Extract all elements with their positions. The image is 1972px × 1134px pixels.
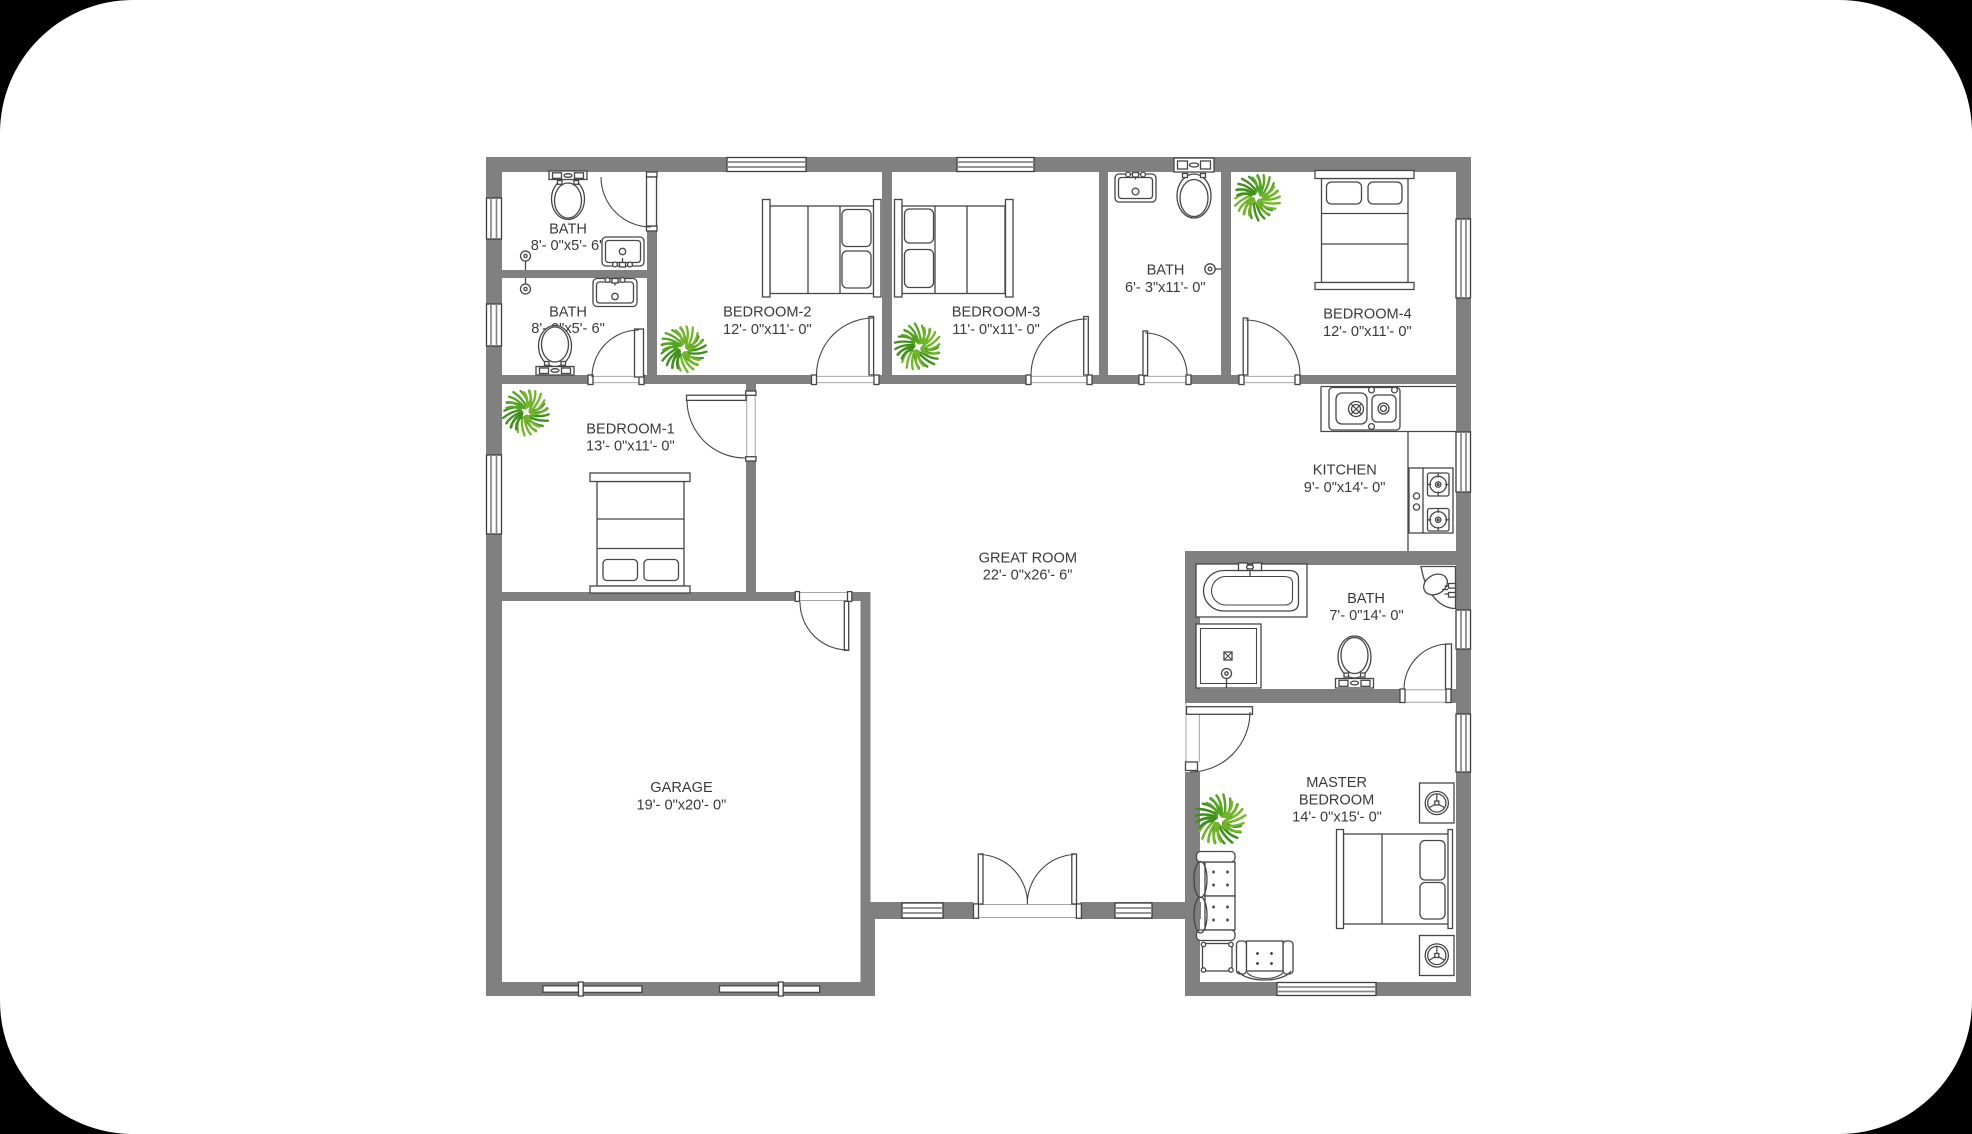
svg-text:KITCHEN: KITCHEN [1313,463,1377,479]
svg-text:19'- 0"x20'- 0": 19'- 0"x20'- 0" [637,797,727,813]
svg-text:BEDROOM-3: BEDROOM-3 [952,305,1040,321]
svg-text:14'- 0"x15'- 0": 14'- 0"x15'- 0" [1292,810,1382,826]
svg-text:BATH: BATH [1347,591,1385,607]
svg-text:22'- 0"x26'- 6": 22'- 0"x26'- 6" [983,568,1073,584]
svg-text:BEDROOM: BEDROOM [1299,792,1374,808]
svg-text:BEDROOM-1: BEDROOM-1 [586,421,674,437]
svg-text:BATH: BATH [549,221,587,237]
svg-text:BATH: BATH [1147,263,1185,279]
svg-text:MASTER: MASTER [1306,775,1367,791]
svg-text:BEDROOM-2: BEDROOM-2 [723,305,811,321]
svg-text:8'- 0"x5'- 6": 8'- 0"x5'- 6" [531,238,605,254]
svg-text:7'- 0"14'- 0": 7'- 0"14'- 0" [1329,608,1403,624]
svg-text:12'- 0"x11'- 0": 12'- 0"x11'- 0" [723,322,812,338]
svg-text:BATH: BATH [549,305,587,321]
svg-text:9'- 0"x14'- 0": 9'- 0"x14'- 0" [1304,480,1386,496]
svg-text:12'- 0"x11'- 0": 12'- 0"x11'- 0" [1323,324,1412,340]
svg-text:GREAT ROOM: GREAT ROOM [979,550,1077,566]
svg-text:13'- 0"x11'- 0": 13'- 0"x11'- 0" [586,439,675,455]
svg-text:GARAGE: GARAGE [650,780,713,796]
svg-text:11'- 0"x11'- 0": 11'- 0"x11'- 0" [952,322,1040,338]
svg-text:BEDROOM-4: BEDROOM-4 [1323,307,1411,323]
svg-text:6'- 3"x11'- 0": 6'- 3"x11'- 0" [1125,280,1206,296]
